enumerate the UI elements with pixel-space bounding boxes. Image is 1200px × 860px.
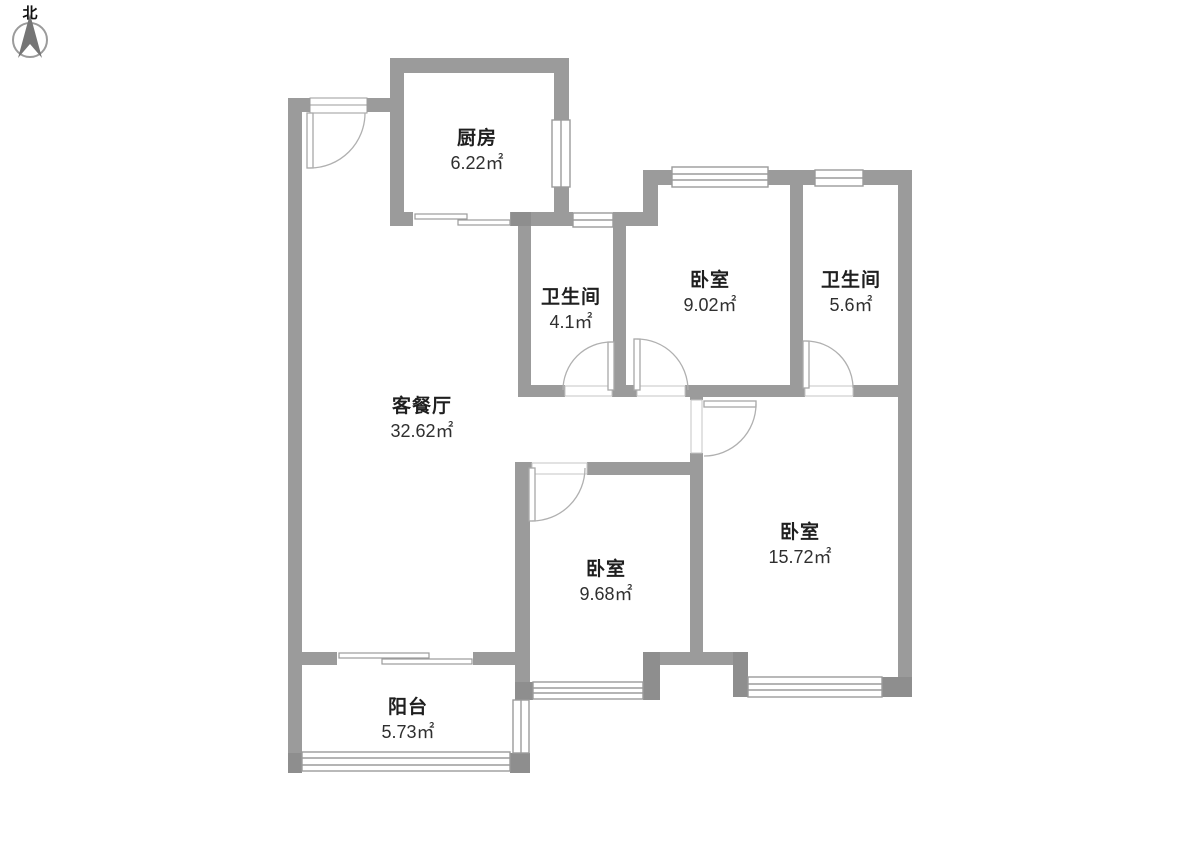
wall-segment [853,385,898,397]
window [748,677,882,697]
walls [288,58,912,773]
door-threshold [805,386,853,396]
wall-segment [768,170,815,185]
bathroom-small-door-arc [563,342,611,390]
wall-segment [390,58,569,73]
wall-segment [690,453,703,652]
column-block [733,652,748,697]
wall-segment [587,462,703,475]
bedroom-middle-door-leaf [529,468,535,521]
door-threshold [637,386,685,396]
wall-segment [612,385,637,397]
wall-segment [390,58,404,226]
bathroom-east-door-arc [806,341,853,388]
wall-segment [898,170,912,697]
wall-segment [554,58,569,120]
wall-segment [518,212,531,397]
wall-segment [367,98,390,112]
bathroom-small-door-leaf [608,342,614,390]
entry-door-leaf [307,113,313,168]
wall-segment [473,652,530,665]
column-block [288,753,302,773]
bedroom-north-door-leaf [634,339,640,390]
wall-segment [515,475,530,700]
column-block [882,677,912,697]
sliding-door-panel [458,220,510,225]
wall-segment [288,652,337,665]
door-threshold [691,400,702,453]
window [302,752,510,771]
door-threshold [565,386,612,396]
wall-segment [613,212,626,397]
bedroom-east-door-arc [704,404,756,456]
wall-segment [390,212,413,226]
bathroom-east-door-leaf [803,341,809,388]
column-block [511,212,531,226]
compass-north-label: 北 [22,2,37,23]
sliding-doors [337,212,510,665]
wall-segment [518,385,565,397]
sliding-door-panel [339,653,429,658]
column-block [643,652,660,700]
column-block [515,682,533,700]
window [533,682,643,699]
floor-plan-drawing [0,0,1200,860]
sliding-door-panel [415,214,467,219]
wall-segment [643,170,658,212]
wall-segment [288,98,310,112]
bedroom-north-door-arc [637,339,688,390]
wall-segment [288,98,302,773]
wall-segment [690,385,703,400]
window [672,167,768,187]
floor-plan-page: 北 厨房 6.22㎡ 卫生间 4.1㎡ 卧室 9.02㎡ 卫生间 5.6㎡ 客餐… [0,0,1200,860]
wall-segment [790,185,803,397]
door-threshold [532,463,587,474]
bedroom-middle-door-arc [532,468,585,521]
entry-door-arc [310,113,365,168]
sliding-door-panel [382,659,472,664]
bedroom-east-door-leaf [704,401,756,407]
column-block [510,753,530,773]
